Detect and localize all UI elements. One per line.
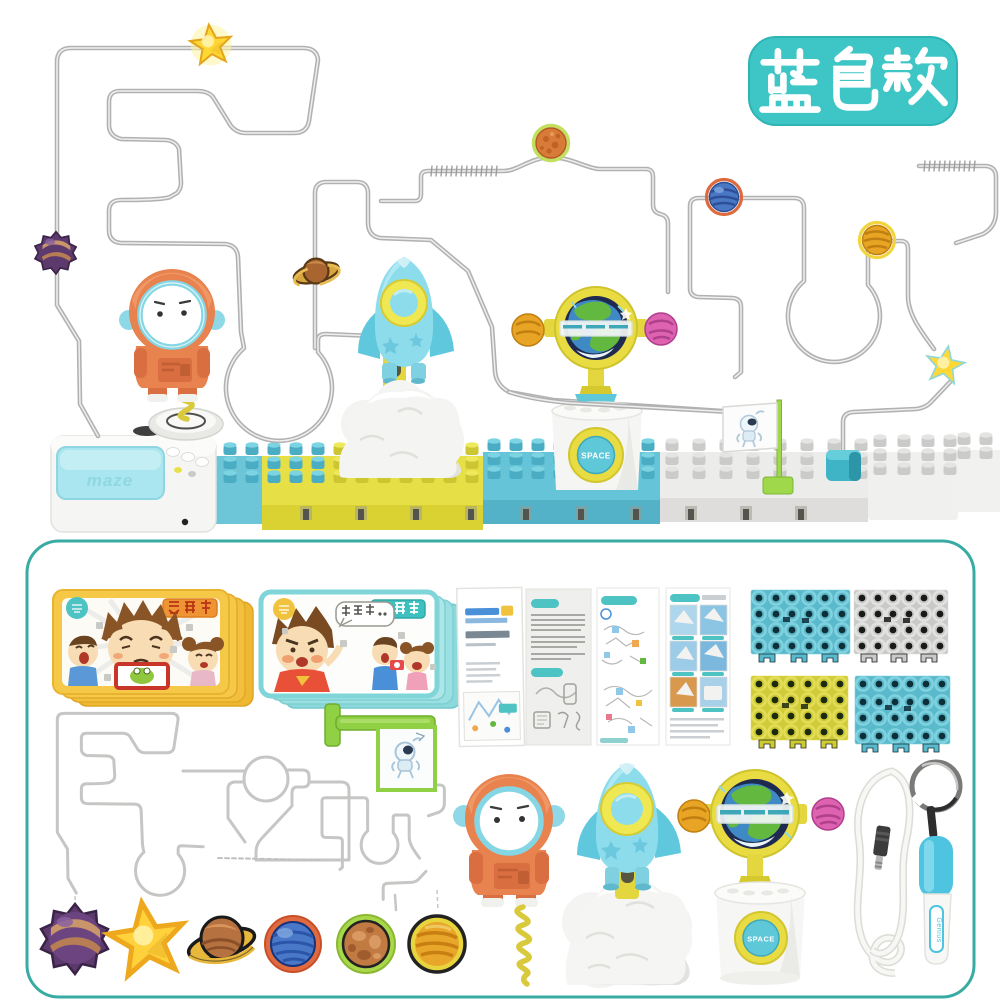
svg-text:SPACE: SPACE: [747, 935, 775, 944]
svg-text:maze: maze: [87, 471, 134, 490]
svg-text:SPACE: SPACE: [581, 452, 611, 461]
svg-text:Genius: Genius: [935, 917, 942, 942]
